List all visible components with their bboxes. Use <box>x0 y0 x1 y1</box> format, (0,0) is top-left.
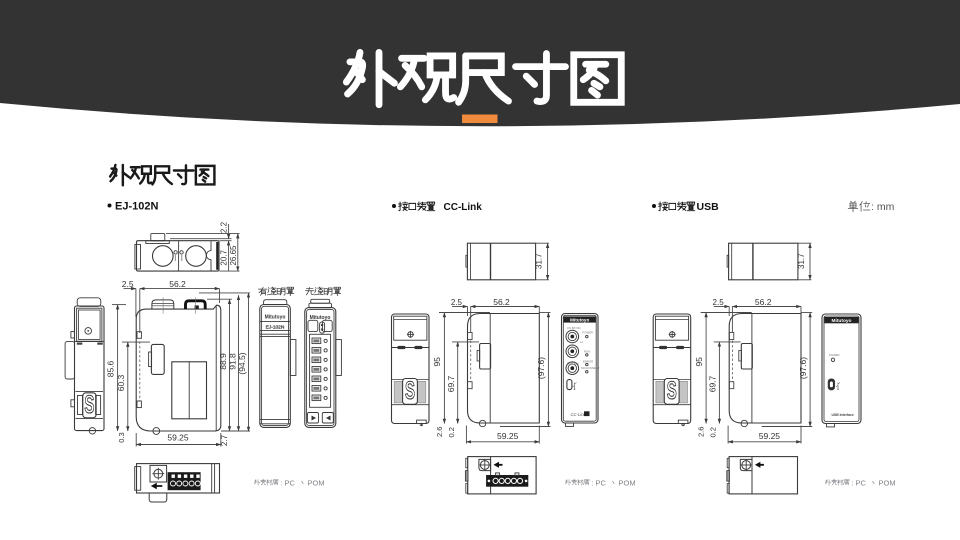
svg-text:Mitutoyo: Mitutoyo <box>265 315 286 321</box>
svg-text:20.7: 20.7 <box>220 249 229 265</box>
svg-text:ERROR: ERROR <box>583 360 593 364</box>
svg-text:91.8: 91.8 <box>228 353 238 370</box>
svg-text:USB Interface: USB Interface <box>832 413 854 417</box>
svg-text:: PC: : PC <box>591 478 606 487</box>
svg-text:56.2: 56.2 <box>169 279 186 289</box>
svg-text:RUN: RUN <box>584 350 590 354</box>
svg-text:31.7: 31.7 <box>797 253 806 269</box>
svg-text:CN B/N Rx: CN B/N Rx <box>567 326 581 330</box>
svg-text:0.3: 0.3 <box>117 432 126 442</box>
svg-text:59.25: 59.25 <box>167 433 189 443</box>
svg-text:POWER: POWER <box>583 331 594 335</box>
svg-text:POM: POM <box>619 478 636 487</box>
svg-text:2.7: 2.7 <box>220 434 229 446</box>
svg-text:S: S <box>84 391 94 419</box>
svg-text:31.7: 31.7 <box>535 253 544 269</box>
svg-text:SD/CONNECT: SD/CONNECT <box>581 366 600 370</box>
svg-text:26.65: 26.65 <box>229 245 238 266</box>
svg-text:: PC: : PC <box>280 478 295 487</box>
svg-text:USB: USB <box>697 201 720 213</box>
svg-text:EJ-102N: EJ-102N <box>266 325 285 331</box>
svg-text:POWER: POWER <box>829 353 840 357</box>
svg-text:(94.5): (94.5) <box>237 352 247 374</box>
svg-text:Mitutoyo: Mitutoyo <box>832 318 852 324</box>
svg-text:CC-Link: CC-Link <box>444 202 483 213</box>
svg-text:: PC: : PC <box>851 478 866 487</box>
svg-text:L1: L1 <box>580 340 584 344</box>
svg-text:2.5: 2.5 <box>122 279 134 289</box>
svg-text:Mitutoyo: Mitutoyo <box>570 317 589 322</box>
svg-text:85.6: 85.6 <box>106 360 116 377</box>
svg-text:: mm: : mm <box>871 201 895 213</box>
svg-text:2.2: 2.2 <box>220 221 229 233</box>
svg-text:POM: POM <box>879 478 896 487</box>
svg-text:60.3: 60.3 <box>116 374 126 391</box>
svg-text:EJ-102N: EJ-102N <box>115 201 158 213</box>
svg-text:POM: POM <box>308 478 325 487</box>
